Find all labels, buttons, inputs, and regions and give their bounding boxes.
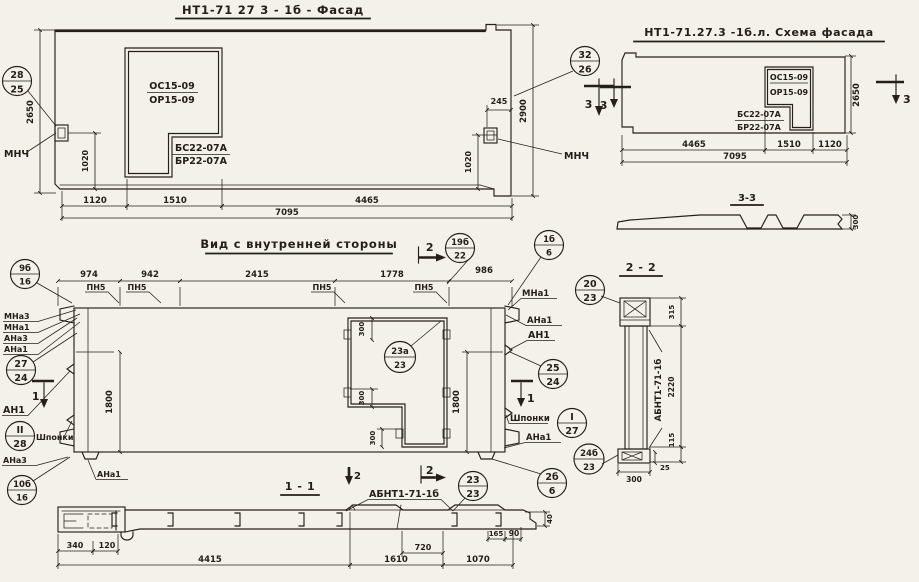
section-1-1: 1 - 1 АБНТ1-71-1б 23 23: [58, 472, 554, 570]
svg-text:90: 90: [509, 529, 519, 538]
schema-window-frame-label: ОР15-09: [770, 88, 809, 97]
rebar-mark: [337, 513, 342, 526]
svg-text:27: 27: [565, 426, 578, 437]
svg-text:23: 23: [466, 475, 479, 486]
svg-text:300: 300: [358, 391, 366, 406]
callout-20-23: 20 23: [576, 276, 621, 305]
svg-text:II: II: [16, 425, 23, 436]
svg-text:20: 20: [583, 279, 597, 290]
svg-text:2415: 2415: [245, 270, 269, 280]
svg-text:АНа3: АНа3: [3, 456, 27, 465]
facade-anchor-right: [484, 128, 497, 143]
svg-text:АНа1: АНа1: [527, 316, 552, 326]
svg-text:25: 25: [546, 363, 559, 374]
svg-text:ПН5: ПН5: [415, 283, 434, 292]
dim-1510: 1510: [163, 196, 187, 206]
callout-32-26: 32 26: [514, 47, 600, 97]
right-arrow-icon: [436, 474, 446, 482]
svg-text:1800: 1800: [452, 390, 462, 414]
facade-title: НТ1-71 27 3 - 1б - Фасад: [182, 3, 364, 17]
svg-text:6: 6: [546, 249, 552, 259]
anchor-bottom-right: [478, 452, 495, 459]
svg-text:6: 6: [549, 486, 556, 497]
callout-24b-23: 24б 23: [574, 444, 618, 474]
schema-title: НТ1-71.27.3 -1б.л. Схема фасада: [644, 26, 874, 39]
svg-text:340: 340: [67, 541, 84, 550]
facade-panel-outline: [55, 25, 511, 197]
svg-text:16: 16: [16, 494, 28, 504]
svg-text:АНа1: АНа1: [97, 470, 121, 479]
facade-view: НТ1-71 27 3 - 1б - Фасад ОС15-09 ОР15-09…: [3, 3, 615, 221]
rebar-mark: [299, 513, 304, 526]
svg-text:23: 23: [583, 463, 595, 473]
svg-text:25: 25: [660, 464, 670, 472]
schema-balcony-block-label: БС22-07А: [737, 110, 782, 119]
callout-19b-22: 19б 22: [446, 234, 475, 285]
svg-text:24: 24: [14, 373, 28, 384]
facade-window-block-label: ОС15-09: [149, 81, 194, 92]
facade-window-frame-label: ОР15-09: [149, 95, 194, 106]
svg-text:300: 300: [369, 431, 377, 446]
facade-balcony-frame-label: БР22-07А: [175, 156, 228, 167]
svg-text:2: 2: [354, 471, 361, 482]
svg-text:26: 26: [578, 65, 592, 76]
svg-text:25: 25: [10, 85, 23, 96]
svg-text:300: 300: [626, 475, 642, 484]
svg-text:ПН5: ПН5: [313, 283, 332, 292]
svg-text:23а: 23а: [391, 347, 409, 357]
dim-300-schema: 300: [852, 215, 860, 230]
s22-top-box: [620, 298, 650, 326]
s22-bottom-box: [618, 449, 650, 463]
s22-bar: [625, 326, 647, 449]
dim-245: 245: [491, 97, 508, 106]
svg-text:МНа1: МНа1: [4, 323, 30, 332]
schema-balcony-frame-label: БР22-07А: [737, 123, 782, 132]
tab-bottom-right: [505, 429, 519, 446]
dim-2650: 2650: [26, 100, 36, 124]
facade-balcony-block-label: БС22-07А: [175, 143, 228, 154]
schema-view: НТ1-71.27.3 -1б.л. Схема фасада ОС15-09 …: [600, 26, 912, 229]
svg-text:АН1: АН1: [3, 405, 25, 416]
dim-1020-left: 1020: [81, 149, 90, 172]
svg-text:23: 23: [583, 293, 596, 304]
s22-part-label: АБНТ1-71-1б: [653, 359, 664, 422]
svg-text:4415: 4415: [198, 555, 222, 565]
svg-text:3: 3: [903, 93, 911, 106]
svg-text:974: 974: [80, 270, 98, 280]
svg-text:23: 23: [466, 489, 479, 500]
svg-text:165: 165: [489, 530, 504, 538]
down-arrow-icon: [517, 398, 525, 407]
section-1-1-title: 1 - 1: [285, 480, 316, 493]
key-left-1: [67, 364, 74, 374]
callout-I-27: I 27: [558, 409, 587, 438]
svg-text:ПН5: ПН5: [87, 283, 106, 292]
svg-text:24: 24: [546, 377, 560, 388]
svg-text:1778: 1778: [380, 270, 404, 280]
callout-23a-23: 23а 23: [385, 321, 442, 373]
dim-7095: 7095: [275, 208, 299, 218]
callout-II-28: II 28: [6, 422, 35, 451]
shponki-left-label: Шпонки: [36, 433, 73, 442]
schema-window-block-label: ОС15-09: [770, 73, 809, 82]
inner-view: Вид с внутренней стороны 2 19б 22 1б 6: [2, 231, 587, 505]
pn5-labels: ПН5 ПН5 ПН5 ПН5: [85, 283, 447, 303]
down-arrow-icon: [610, 99, 618, 108]
svg-text:МНа3: МНа3: [4, 312, 30, 321]
dim-2650-schema: 2650: [852, 83, 862, 107]
down-arrow-icon: [345, 476, 353, 485]
svg-text:1800: 1800: [105, 390, 115, 414]
inner-panel-outline: [74, 308, 505, 452]
inner-section2-top: 2: [419, 241, 447, 263]
svg-text:2: 2: [426, 464, 434, 477]
dim-1020-right: 1020: [464, 150, 473, 173]
drawing-sheet: НТ1-71 27 3 - 1б - Фасад ОС15-09 ОР15-09…: [0, 0, 919, 582]
down-arrow-icon: [40, 399, 48, 408]
svg-text:24б: 24б: [580, 448, 598, 459]
svg-text:ПН5: ПН5: [128, 283, 147, 292]
svg-text:1: 1: [527, 392, 535, 405]
svg-text:120: 120: [99, 541, 116, 550]
inner-window-inner: [351, 321, 444, 444]
svg-text:942: 942: [141, 270, 159, 280]
svg-text:АНа3: АНа3: [4, 334, 28, 343]
inner-window-outer: [348, 318, 447, 447]
down-arrow-icon: [892, 95, 900, 104]
svg-text:9б: 9б: [19, 263, 31, 274]
svg-text:27: 27: [14, 359, 27, 370]
svg-text:28: 28: [10, 70, 24, 81]
callout-25-24: 25 24: [510, 352, 568, 389]
svg-text:19б: 19б: [451, 237, 469, 248]
svg-text:1070: 1070: [466, 555, 490, 565]
svg-text:3: 3: [585, 98, 593, 111]
svg-text:I: I: [570, 412, 574, 423]
svg-text:1б: 1б: [543, 234, 555, 245]
svg-text:АНа1: АНа1: [4, 345, 28, 354]
svg-text:1: 1: [32, 390, 40, 403]
inner-section2-bottom-left: 2: [345, 467, 361, 485]
svg-text:2220: 2220: [667, 377, 676, 398]
rebar-mark: [452, 513, 457, 526]
callout-2b-6: 2б 6: [492, 459, 567, 498]
svg-text:3: 3: [600, 99, 608, 112]
svg-text:АН1: АН1: [528, 330, 550, 341]
inner-section1-left: 1: [32, 381, 54, 408]
dim-1120: 1120: [83, 196, 107, 206]
dim-2900: 2900: [519, 99, 529, 123]
svg-text:АНа1: АНа1: [526, 433, 551, 443]
inner-title: Вид с внутренней стороны: [200, 237, 397, 251]
section-2-2-title: 2 - 2: [626, 261, 657, 274]
s11-hook: [121, 532, 133, 540]
svg-text:Шпонки: Шпонки: [510, 414, 550, 424]
svg-text:7095: 7095: [723, 152, 747, 162]
svg-text:16: 16: [19, 278, 31, 288]
schema-section3-left: 3: [600, 79, 631, 112]
inner-section2-bottom: 2: [421, 464, 446, 483]
svg-text:40: 40: [546, 514, 554, 524]
schema-panel-outline: [622, 53, 845, 133]
svg-text:115: 115: [668, 433, 676, 448]
svg-text:2: 2: [426, 241, 434, 254]
rebar-mark: [235, 513, 240, 526]
rebar-mark: [168, 513, 173, 526]
svg-text:28: 28: [13, 439, 27, 450]
section-3-3-title: 3-3: [738, 193, 756, 204]
anchor-bottom-left: [82, 452, 99, 459]
svg-text:1610: 1610: [384, 555, 408, 565]
schema-section3-right: 3: [876, 75, 911, 106]
s11-strip-outline: [125, 505, 536, 532]
svg-text:720: 720: [415, 543, 432, 552]
svg-text:10б: 10б: [13, 479, 31, 490]
facade-mnch-left-label: МНЧ: [4, 149, 29, 160]
svg-text:986: 986: [475, 266, 493, 276]
section-3-3-profile: [617, 215, 842, 229]
facade-mnch-right-label: МНЧ: [564, 151, 589, 162]
svg-text:1120: 1120: [818, 140, 842, 150]
facade-anchor-left: [55, 125, 68, 141]
section-2-2: 2 - 2 20 23 24б 23: [574, 261, 686, 484]
svg-text:2б: 2б: [545, 472, 559, 483]
dim-4465: 4465: [355, 196, 379, 206]
svg-text:300: 300: [358, 322, 366, 337]
inner-section1-right: 1: [511, 381, 535, 407]
svg-text:23: 23: [394, 361, 406, 371]
s11-part-label: АБНТ1-71-1б: [369, 489, 439, 500]
svg-text:315: 315: [668, 305, 676, 320]
svg-text:4465: 4465: [682, 140, 706, 150]
right-arrow-icon: [436, 254, 446, 262]
key-right-1: [505, 345, 512, 355]
svg-text:МНа1: МНа1: [522, 289, 549, 299]
svg-text:32: 32: [578, 50, 591, 61]
panel-drawing-svg: НТ1-71 27 3 - 1б - Фасад ОС15-09 ОР15-09…: [0, 0, 919, 582]
svg-text:1510: 1510: [777, 140, 801, 150]
rebar-mark: [496, 513, 501, 526]
svg-text:22: 22: [454, 252, 466, 262]
